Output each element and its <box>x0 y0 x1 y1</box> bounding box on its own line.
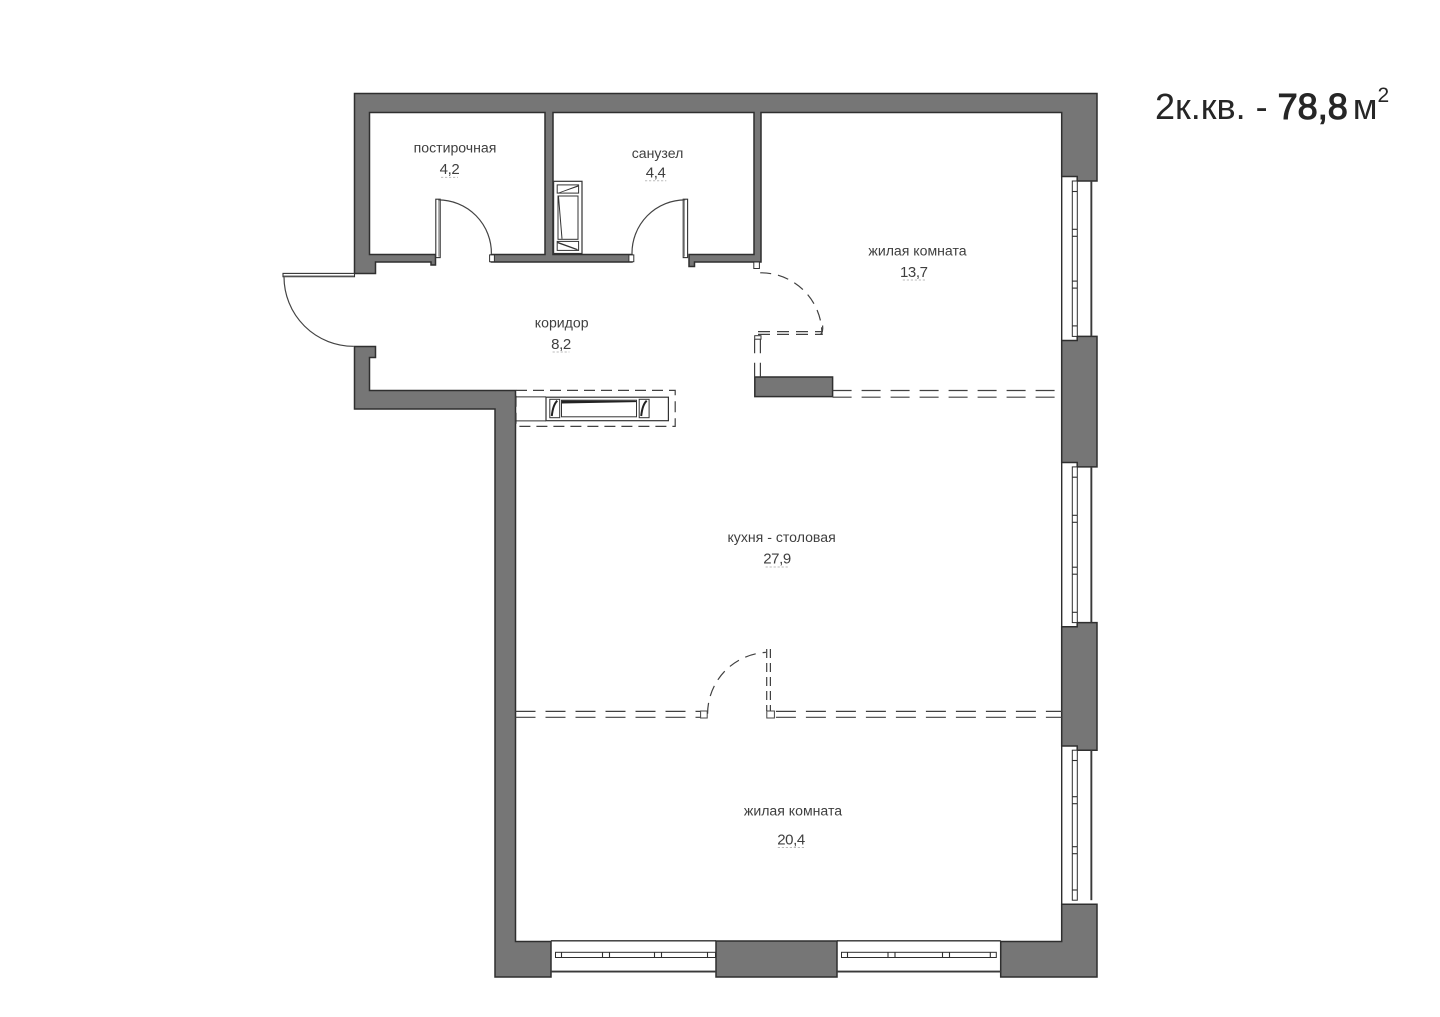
svg-text:20,4: 20,4 <box>777 832 805 849</box>
svg-text:коридор: коридор <box>535 315 589 331</box>
svg-text:жилая комната: жилая комната <box>868 243 966 259</box>
svg-text:4,2: 4,2 <box>440 161 460 178</box>
svg-text:27,9: 27,9 <box>763 551 791 568</box>
svg-text:санузел: санузел <box>632 145 684 161</box>
svg-text:жилая комната: жилая комната <box>744 803 842 819</box>
svg-text:2к.кв. - 78,8 м2: 2к.кв. - 78,8 м2 <box>1155 84 1389 127</box>
svg-text:13,7: 13,7 <box>900 264 928 281</box>
svg-text:8,2: 8,2 <box>551 336 571 353</box>
svg-text:постирочная: постирочная <box>414 140 497 156</box>
svg-text:кухня - столовая: кухня - столовая <box>727 529 835 545</box>
svg-text:4,4: 4,4 <box>646 165 666 182</box>
